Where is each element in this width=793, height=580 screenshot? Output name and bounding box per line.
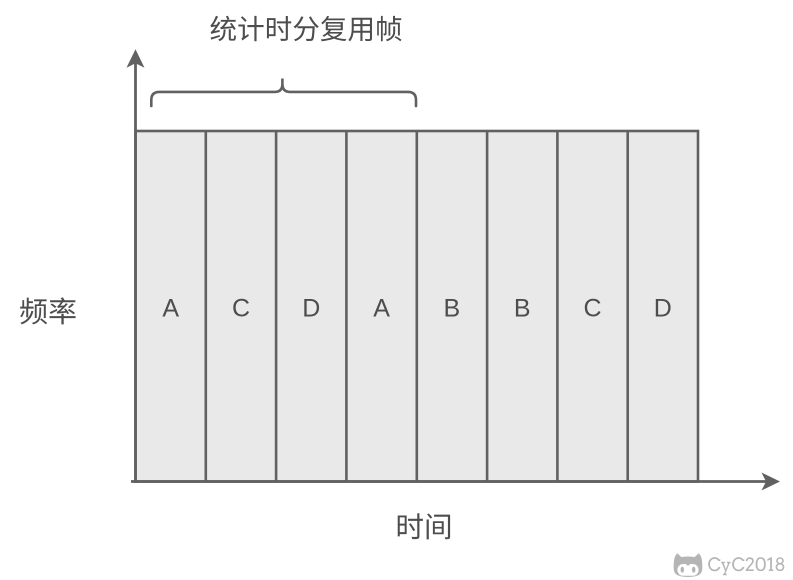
svg-text:A: A [373, 295, 390, 323]
svg-text:D: D [654, 295, 672, 323]
svg-text:D: D [302, 295, 320, 323]
svg-text:B: B [514, 295, 531, 323]
svg-text:C: C [232, 295, 250, 323]
svg-text:B: B [444, 295, 461, 323]
svg-text:A: A [162, 295, 179, 323]
svg-text:C: C [583, 295, 601, 323]
